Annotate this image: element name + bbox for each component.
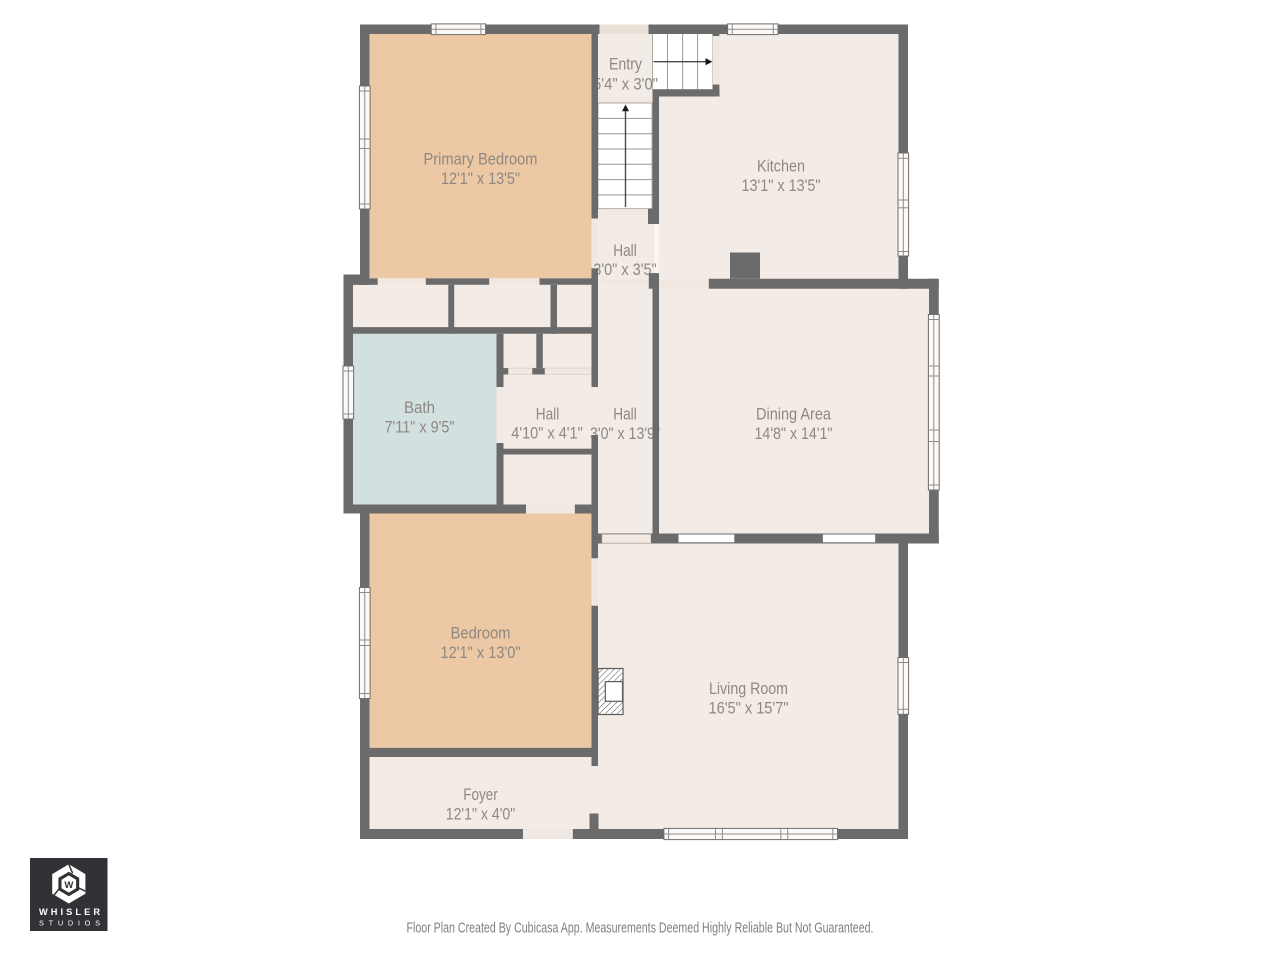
svg-text:3'0" x 13'9": 3'0" x 13'9"	[590, 424, 660, 443]
svg-text:5'4" x 3'0": 5'4" x 3'0"	[593, 75, 658, 94]
svg-text:7'11" x 9'5": 7'11" x 9'5"	[385, 418, 455, 437]
svg-text:Bedroom: Bedroom	[451, 624, 511, 643]
svg-text:3'0" x 3'5": 3'0" x 3'5"	[593, 260, 657, 279]
svg-text:14'8" x 14'1": 14'8" x 14'1"	[755, 424, 833, 443]
svg-text:4'10" x 4'1": 4'10" x 4'1"	[511, 424, 583, 443]
svg-text:Bath: Bath	[404, 398, 435, 417]
svg-text:12'1" x 13'0": 12'1" x 13'0"	[441, 643, 521, 662]
svg-text:Foyer: Foyer	[463, 785, 498, 804]
svg-text:Floor Plan Created By Cubicasa: Floor Plan Created By Cubicasa App. Meas…	[407, 921, 874, 937]
svg-text:12'1" x 4'0": 12'1" x 4'0"	[446, 805, 516, 824]
svg-text:W: W	[64, 880, 73, 891]
svg-text:Hall: Hall	[536, 405, 560, 424]
svg-text:16'5" x 15'7": 16'5" x 15'7"	[709, 699, 789, 718]
svg-text:Hall: Hall	[613, 405, 637, 424]
svg-text:Dining Area: Dining Area	[756, 405, 831, 424]
svg-text:Entry: Entry	[609, 55, 642, 74]
svg-text:Hall: Hall	[613, 241, 637, 260]
svg-text:Primary Bedroom: Primary Bedroom	[424, 150, 538, 169]
svg-text:12'1" x 13'5": 12'1" x 13'5"	[441, 169, 520, 188]
svg-text:Living Room: Living Room	[709, 679, 788, 698]
svg-text:Kitchen: Kitchen	[757, 157, 805, 176]
svg-text:13'1" x 13'5": 13'1" x 13'5"	[742, 176, 821, 195]
